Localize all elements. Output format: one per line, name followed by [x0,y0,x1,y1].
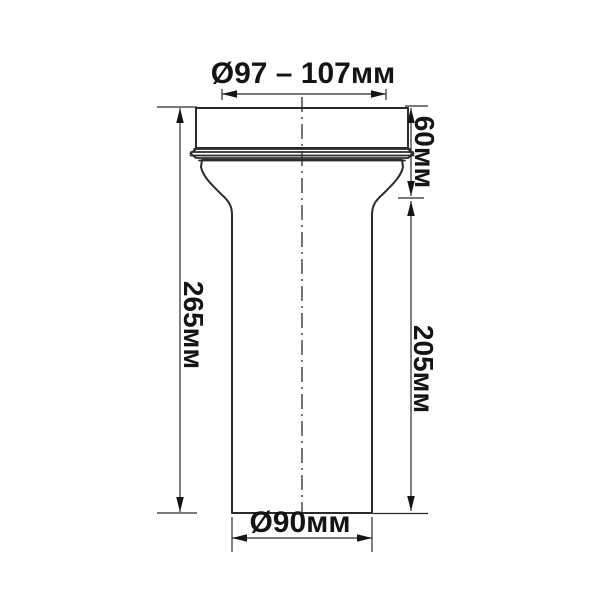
dim-body-height: 205мм [373,201,439,514]
arrowhead-right [357,534,372,542]
arrowhead-up [407,201,415,216]
dim-top-diameter: Ø97 – 107мм [211,57,396,100]
arrowhead-down [176,497,184,512]
arrowhead-up [176,108,184,123]
top-diameter-label: Ø97 – 107мм [211,57,396,90]
arrowhead-down [407,496,415,511]
body-height-label: 205мм [408,325,439,413]
pipe-connector-drawing: Ø97 – 107мм 265мм 60мм [0,0,600,600]
arrowhead-right [371,90,386,98]
arrowhead-left [222,90,237,98]
bottom-diameter-label: Ø90мм [249,506,350,539]
socket-height-label: 60мм [409,116,440,189]
overall-height-label: 265мм [178,281,209,369]
technical-drawing-canvas: Ø97 – 107мм 265мм 60мм [0,0,600,600]
arrowhead-left [232,534,247,542]
